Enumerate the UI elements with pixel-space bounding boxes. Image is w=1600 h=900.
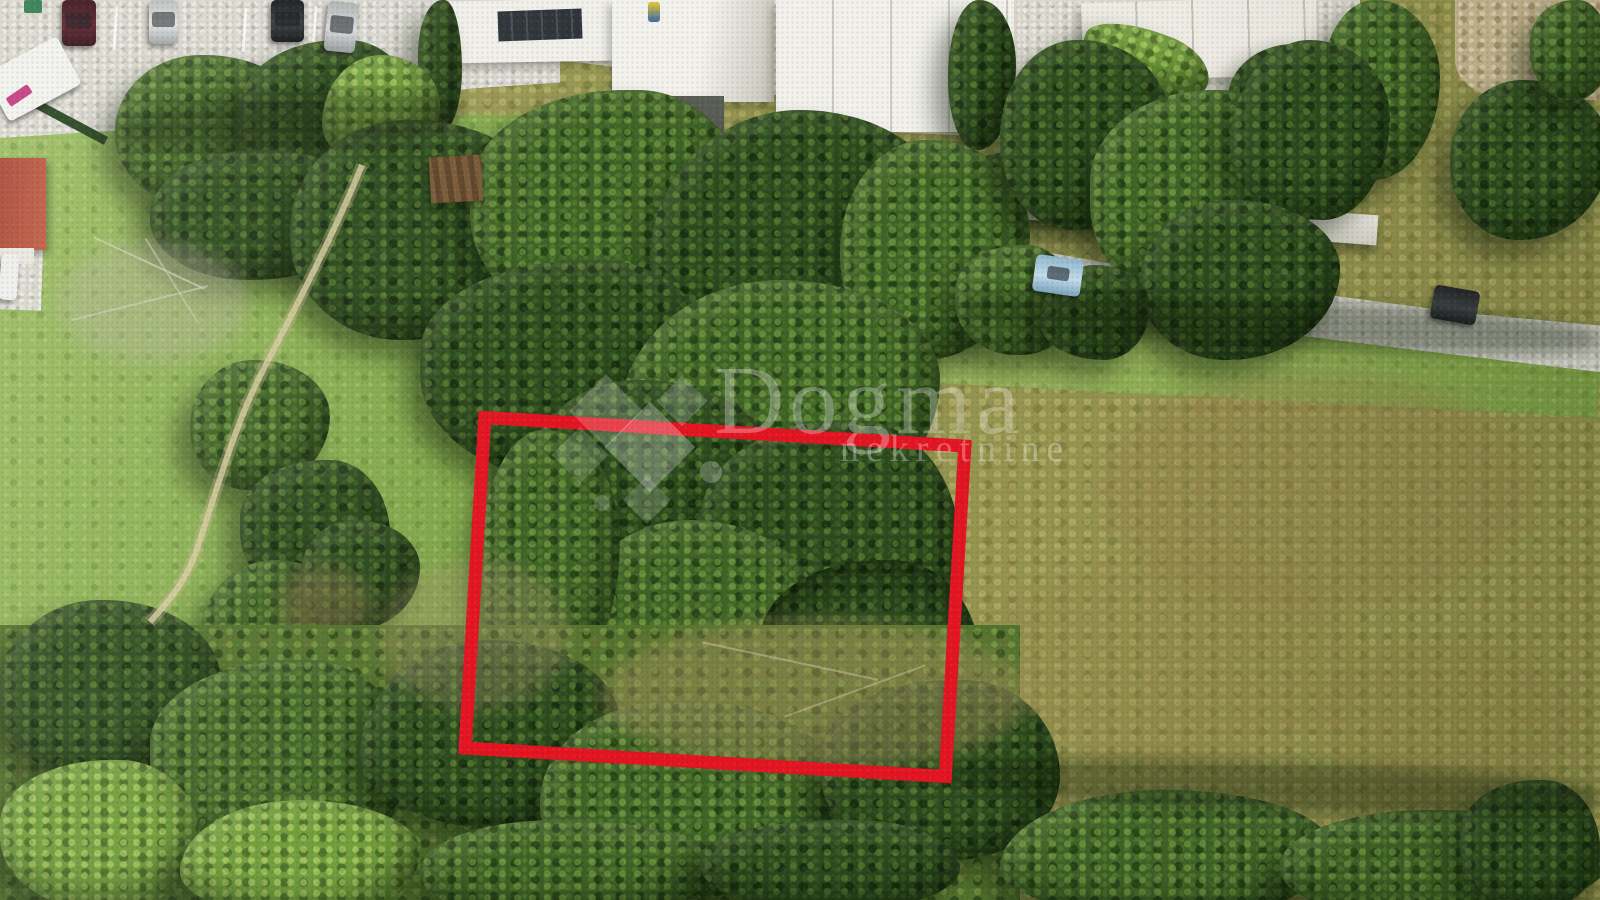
parked-car-silver [149,0,178,44]
parked-car-black [271,0,304,42]
parked-car-white [0,253,20,300]
parked-car-maroon [62,0,96,46]
aerial-photo: Dogma nekretnine [0,0,1600,900]
logo-dot [594,495,610,511]
van-logo-stripe [6,84,33,107]
wooden-shed [429,155,483,204]
watermark-subtitle: nekretnine [840,430,1070,468]
logo-dot [700,461,722,483]
logo-diamond [623,476,671,524]
road-car-blue [1032,254,1085,297]
parked-car-silver-2 [323,1,359,54]
